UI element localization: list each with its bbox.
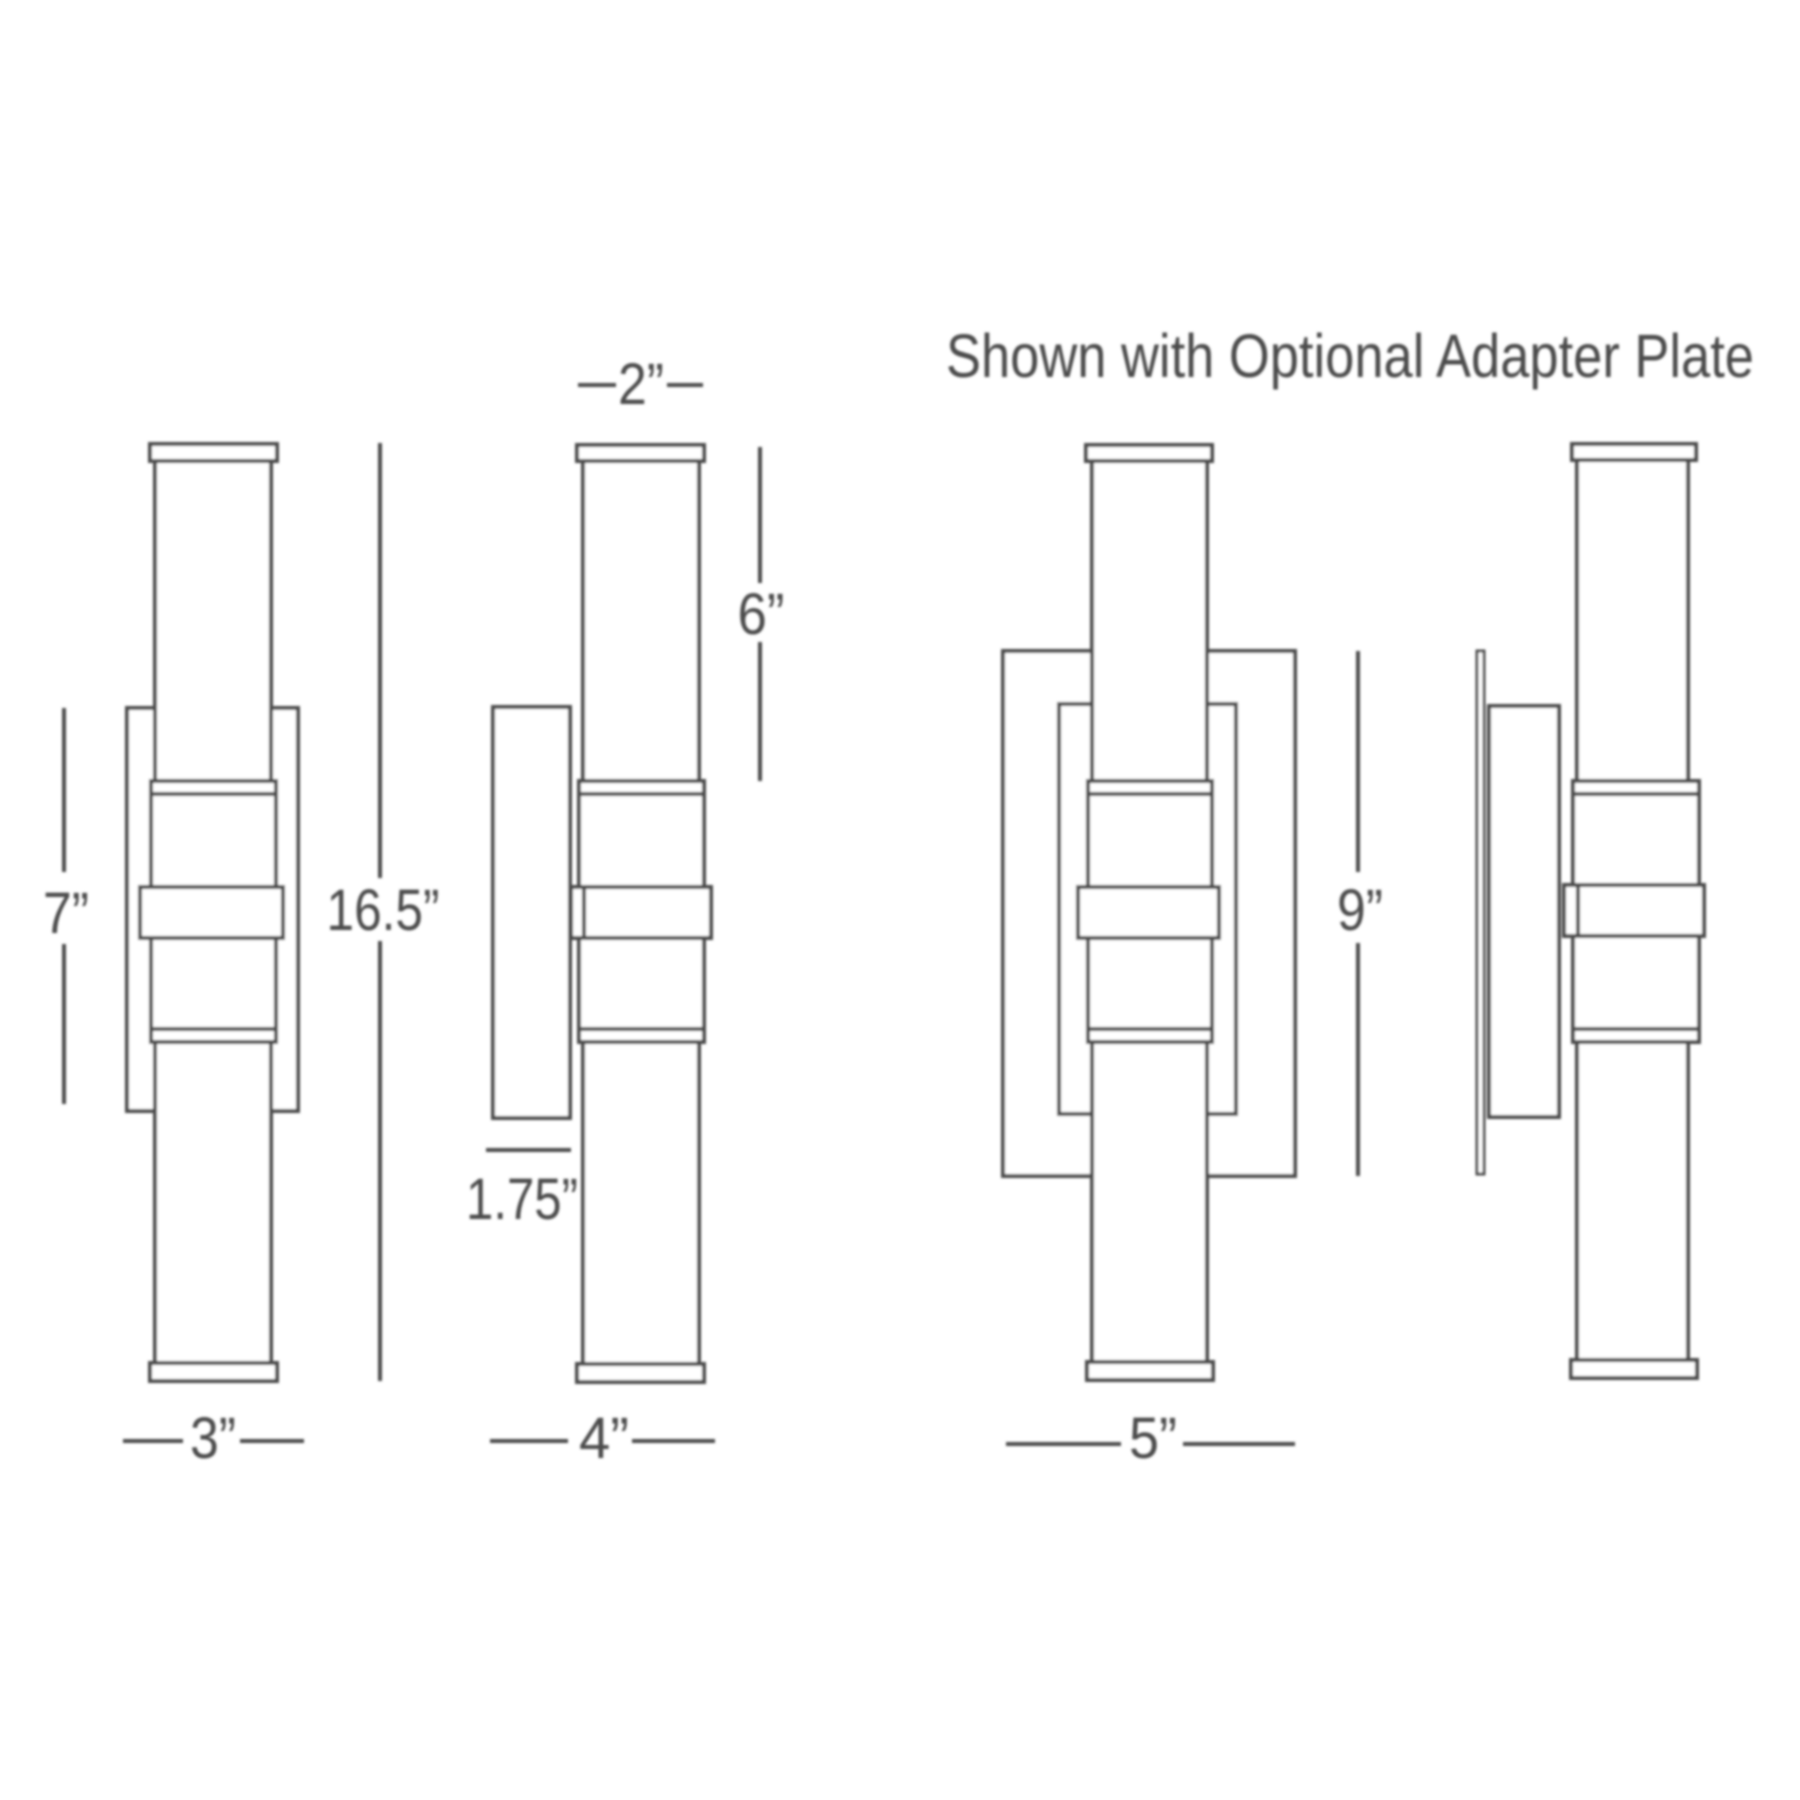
svg-text:6”: 6” (738, 582, 785, 647)
svg-text:9”: 9” (1337, 878, 1383, 943)
svg-text:5”: 5” (1129, 1406, 1177, 1471)
svg-text:1.75”: 1.75” (466, 1167, 578, 1232)
svg-text:Shown with Optional Adapter Pl: Shown with Optional Adapter Plate (946, 322, 1754, 390)
svg-text:2”: 2” (618, 352, 664, 417)
svg-text:7”: 7” (43, 881, 89, 946)
svg-text:3”: 3” (190, 1406, 236, 1471)
svg-text:4”: 4” (579, 1406, 629, 1471)
svg-text:16.5”: 16.5” (327, 878, 440, 943)
